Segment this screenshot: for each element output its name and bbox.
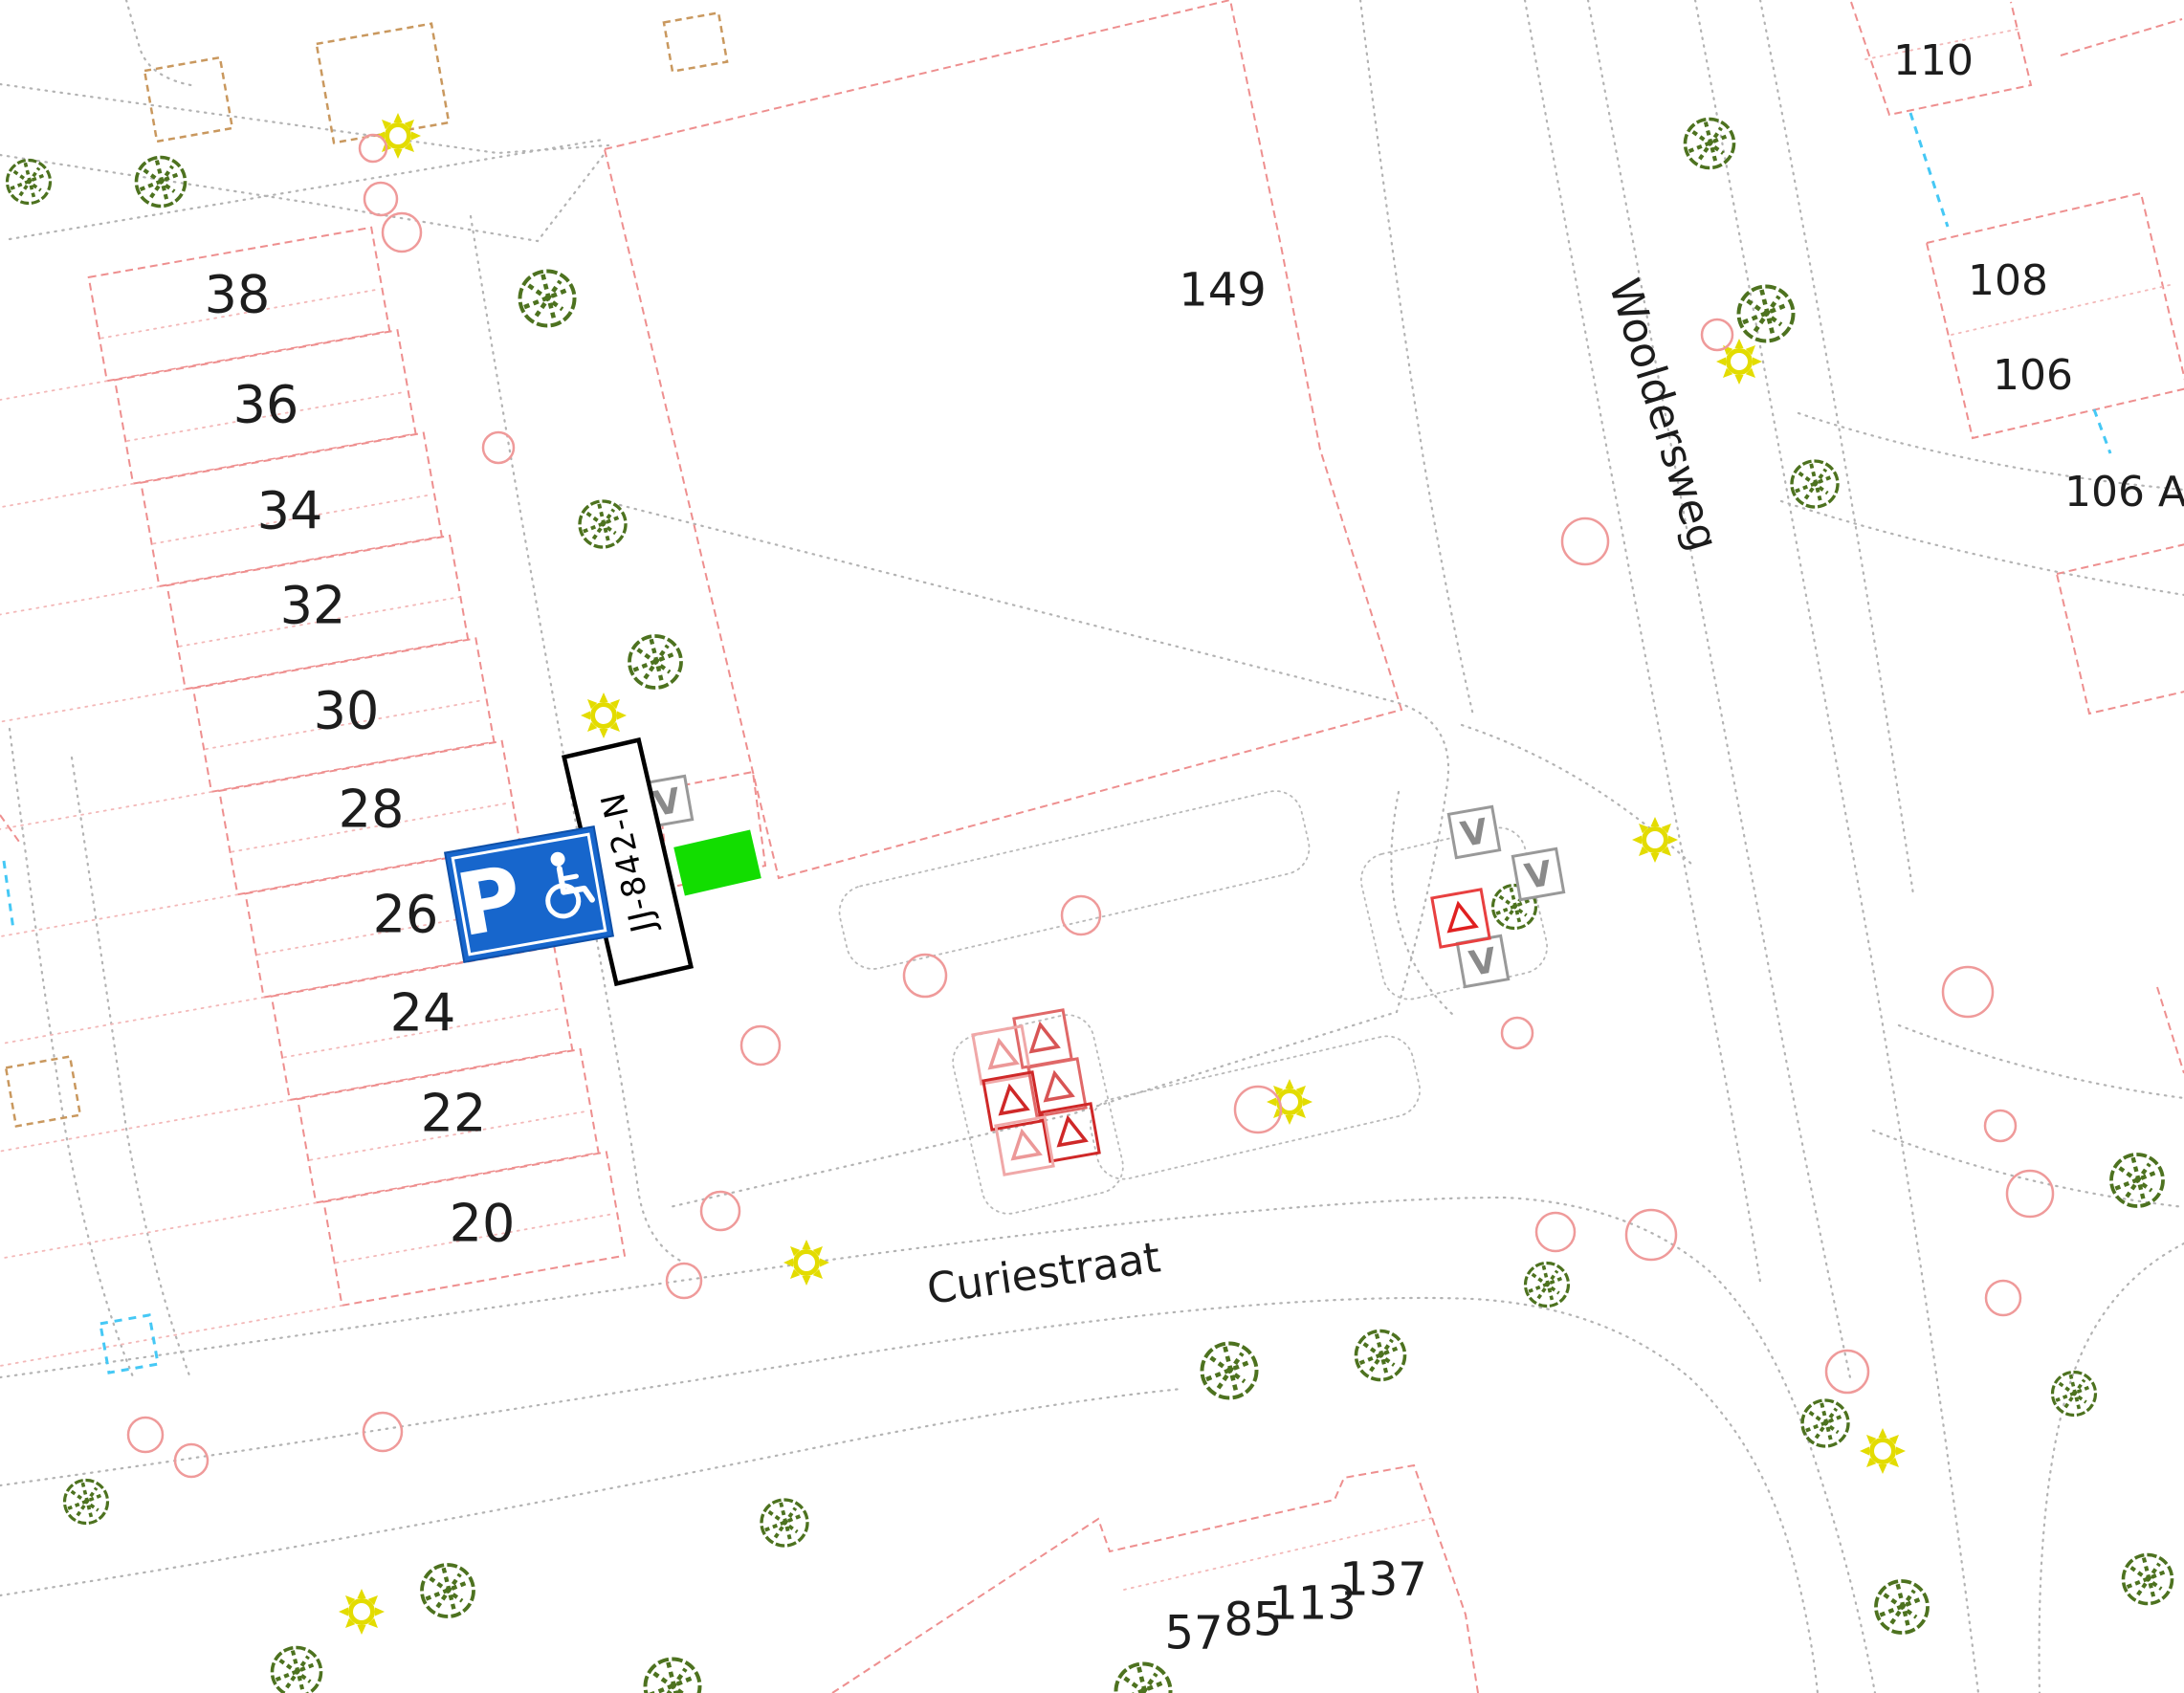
road-line — [1588, 0, 1851, 1382]
utility-circle-icon — [175, 1444, 208, 1477]
utility-circle-icon — [1943, 967, 1993, 1017]
utility-circle-icon — [360, 135, 386, 162]
warning-marker-icon — [1028, 1059, 1086, 1116]
cadastral-map: VVVVJJ-842-NP 38363432302826242220149110… — [0, 0, 2184, 1693]
streetlight-icon — [1632, 817, 1678, 863]
utility-circle-icon — [701, 1192, 739, 1230]
road-line — [0, 151, 607, 241]
road-line — [72, 758, 189, 1375]
streetlight-icon — [783, 1240, 829, 1286]
streetlight-icon — [1860, 1428, 1906, 1474]
utility-circle-icon — [1826, 1351, 1868, 1393]
road-line — [0, 84, 608, 153]
garden-dotted-line — [0, 1306, 342, 1366]
utility-circle-icon — [1502, 1018, 1533, 1048]
building-outline — [1927, 193, 2184, 438]
house-number-label: 108 — [1968, 256, 2048, 305]
house-number-label: 36 — [233, 374, 299, 434]
garden-dotted-line — [0, 894, 237, 936]
utility-circle-icon — [1985, 1110, 2016, 1141]
house-number-label: 22 — [421, 1083, 487, 1143]
house-number-label: 26 — [373, 884, 439, 944]
shed-outline — [664, 12, 727, 71]
road-line — [10, 140, 603, 239]
building-outline — [2057, 539, 2184, 714]
utility-circle-icon — [483, 432, 514, 463]
garden-dotted-line — [0, 586, 159, 614]
garden-dotted-line — [0, 1100, 290, 1152]
road-line — [1360, 0, 1473, 715]
tree-icon — [2124, 1555, 2173, 1604]
tree-icon — [1876, 1581, 1928, 1633]
tree-icon — [2053, 1373, 2096, 1416]
tree-icon — [1686, 120, 1734, 168]
streetlight-icon — [1267, 1079, 1313, 1125]
utility-circle-icon — [1536, 1213, 1575, 1251]
house-number-label: 34 — [257, 480, 323, 540]
tree-icon — [580, 501, 626, 547]
v-marker-icon: V — [1512, 848, 1563, 899]
tree-icon — [65, 1481, 108, 1524]
warning-box — [1028, 1059, 1086, 1116]
streetlight-icon — [375, 113, 421, 159]
pipe-line — [2094, 409, 2110, 453]
tree-icon — [1802, 1400, 1848, 1446]
garden-dotted-line — [0, 1203, 316, 1259]
tree-icon — [520, 272, 575, 326]
garden-dotted-line — [0, 690, 186, 722]
tree-icon — [1116, 1664, 1171, 1693]
road-line — [1525, 0, 1760, 1282]
road-line — [0, 1298, 1818, 1693]
road-line — [1391, 792, 1454, 1016]
wheelchair-arm — [562, 876, 577, 879]
road-line — [126, 0, 196, 86]
building-outline — [0, 815, 19, 842]
selected-parcel-marker[interactable] — [673, 829, 761, 895]
tree-icon — [646, 1660, 700, 1693]
house-number-label: 57 — [1164, 1606, 1223, 1660]
house-number-label: 149 — [1179, 263, 1267, 317]
tree-icon — [1357, 1331, 1405, 1380]
garden-dotted-line — [0, 484, 133, 508]
tree-icon — [1792, 461, 1838, 507]
streetlight-icon — [339, 1589, 385, 1635]
utility-circle-icon — [1062, 896, 1100, 934]
tree-icon — [2111, 1154, 2163, 1206]
tree-icon — [422, 1565, 474, 1616]
house-number-label: 28 — [339, 779, 405, 839]
tree-icon — [629, 636, 681, 688]
tree-icon — [1526, 1264, 1569, 1307]
utility-circle-icon — [741, 1026, 780, 1065]
parking-row-outline — [1085, 1031, 1424, 1184]
garden-dotted-line — [0, 381, 107, 400]
utility-circle-icon — [1235, 1087, 1281, 1132]
building-outline — [2157, 987, 2184, 1073]
utility-circle-icon — [2007, 1171, 2053, 1217]
shed-outline — [6, 1057, 80, 1127]
house-number-label: 38 — [205, 264, 271, 324]
road-line — [0, 1389, 1181, 1595]
house-number-label: 20 — [450, 1193, 516, 1253]
house-number-label: 110 — [1893, 36, 1974, 85]
v-marker-icon: V — [1448, 806, 1499, 857]
building-outline — [2061, 19, 2182, 55]
tree-icon — [137, 158, 186, 207]
house-number-label: 30 — [314, 680, 380, 740]
road-line — [2040, 1243, 2184, 1693]
warning-triangle — [1027, 1022, 1058, 1051]
road-line — [1899, 1025, 2184, 1098]
street-name-label: Curiestraat — [924, 1233, 1163, 1314]
tree-icon — [273, 1648, 321, 1693]
utility-circle-icon — [1702, 319, 1732, 350]
house-number-label: 106 A — [2064, 468, 2184, 517]
warning-triangle — [1009, 1130, 1040, 1158]
warning-triangle — [986, 1039, 1017, 1067]
streetlight-icon — [1716, 339, 1762, 385]
tree-icon — [761, 1500, 807, 1546]
pipe-line — [1910, 113, 1948, 227]
shed-outline — [317, 24, 449, 143]
utility-circle-icon — [1986, 1281, 2020, 1315]
parking-row-outline — [834, 785, 1314, 974]
streetlight-icon — [581, 693, 627, 738]
tree-icon — [7, 161, 50, 204]
tree-icon — [1739, 287, 1794, 341]
utility-circle-icon — [904, 955, 946, 997]
shed-outline — [144, 57, 232, 142]
garden-dotted-line — [0, 792, 211, 829]
utility-circle-icon — [1562, 518, 1608, 564]
utility-circle-icon — [364, 1413, 402, 1451]
map-canvas: VVVVJJ-842-NP 38363432302826242220149110… — [0, 0, 2184, 1693]
utility-circle-icon — [364, 183, 397, 215]
house-number-label: 24 — [390, 982, 456, 1043]
warning-triangle — [1042, 1071, 1072, 1100]
garden-dotted-line — [0, 998, 264, 1044]
house-number-label: 106 — [1993, 351, 2073, 400]
utility-circle-icon — [1626, 1210, 1676, 1260]
utility-circle-icon — [128, 1418, 163, 1452]
warning-triangle — [1445, 902, 1476, 931]
tree-icon — [1202, 1344, 1257, 1398]
warning-triangle — [1055, 1116, 1086, 1145]
house-number-label: 32 — [280, 575, 346, 635]
warning-triangle — [997, 1085, 1027, 1113]
pipe-line — [4, 861, 13, 930]
road-line — [1695, 0, 1978, 1693]
building-outline — [605, 0, 1401, 878]
house-number-label: 137 — [1339, 1552, 1427, 1606]
